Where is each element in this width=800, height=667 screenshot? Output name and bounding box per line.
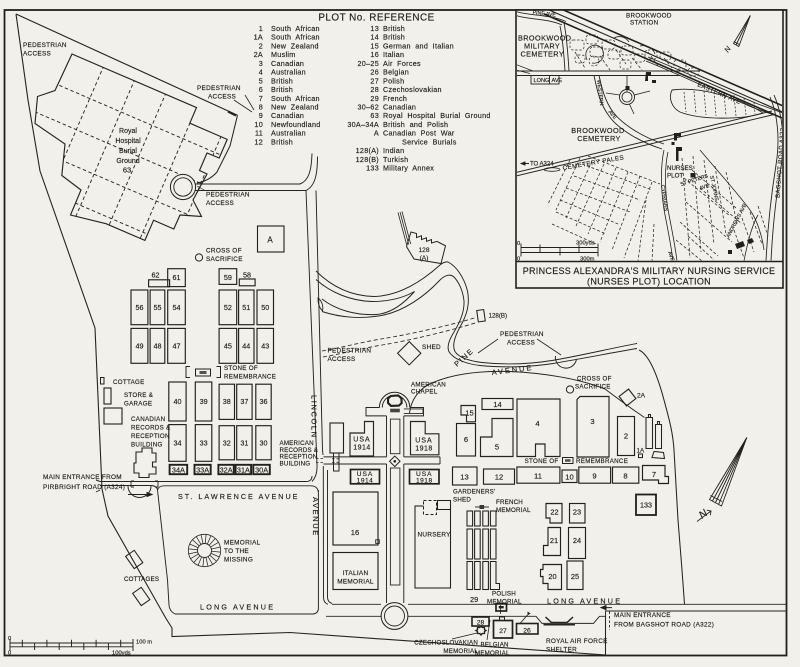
svg-text:61: 61: [173, 273, 181, 282]
svg-text:AVE: AVE: [552, 78, 563, 84]
svg-text:10: 10: [254, 120, 263, 129]
svg-text:32: 32: [223, 439, 231, 448]
svg-text:56: 56: [136, 303, 144, 312]
svg-text:NURSERY: NURSERY: [418, 532, 452, 539]
svg-text:9: 9: [259, 111, 263, 120]
svg-text:1914: 1914: [357, 478, 374, 485]
svg-text:48: 48: [154, 342, 162, 351]
svg-text:7: 7: [652, 470, 656, 479]
svg-text:CEMETERY: CEMETERY: [521, 50, 565, 59]
svg-text:6: 6: [259, 85, 263, 94]
svg-text:LONG AVENUE: LONG AVENUE: [200, 603, 275, 612]
svg-text:ITALIAN: ITALIAN: [343, 570, 369, 577]
svg-text:COTTAGES: COTTAGES: [124, 576, 159, 583]
svg-text:30A: 30A: [255, 466, 268, 475]
svg-text:Air Forces: Air Forces: [383, 59, 421, 68]
svg-text:STORE &: STORE &: [124, 392, 154, 399]
svg-text:British and Polish: British and Polish: [383, 120, 448, 129]
svg-text:MEMORIAL: MEMORIAL: [443, 648, 478, 655]
svg-text:GARDENERS': GARDENERS': [453, 489, 495, 496]
svg-text:(NURSES PLOT) LOCATION: (NURSES PLOT) LOCATION: [587, 277, 711, 287]
svg-text:1A: 1A: [637, 448, 645, 455]
svg-text:British: British: [271, 137, 293, 146]
svg-text:AVENUE: AVENUE: [311, 497, 320, 537]
svg-text:5: 5: [495, 443, 499, 452]
svg-text:30–62: 30–62: [358, 103, 380, 112]
svg-text:16: 16: [370, 50, 379, 59]
svg-text:1918: 1918: [416, 478, 433, 485]
svg-text:38: 38: [223, 397, 231, 406]
svg-text:1A: 1A: [254, 33, 263, 42]
svg-text:Military Annex: Military Annex: [383, 164, 434, 173]
svg-text:128: 128: [418, 247, 429, 254]
svg-text:New Zealand: New Zealand: [271, 103, 319, 112]
svg-text:133: 133: [640, 501, 652, 510]
svg-text:29: 29: [370, 94, 379, 103]
svg-text:CHAPEL: CHAPEL: [411, 389, 438, 396]
svg-text:Service Burials: Service Burials: [402, 137, 457, 146]
svg-text:24: 24: [573, 536, 581, 545]
svg-text:SHED: SHED: [453, 497, 471, 504]
svg-text:SACRIFICE: SACRIFICE: [575, 384, 611, 391]
svg-text:CROSS OF: CROSS OF: [577, 376, 612, 383]
svg-text:32A: 32A: [220, 466, 233, 475]
svg-text:300yds: 300yds: [576, 241, 595, 247]
svg-text:Belgian: Belgian: [383, 68, 409, 77]
svg-text:Ground: Ground: [116, 158, 139, 165]
svg-text:2A: 2A: [254, 50, 263, 59]
svg-text:TO A324: TO A324: [530, 162, 554, 168]
svg-text:PLOT: PLOT: [667, 173, 683, 180]
svg-text:ROYAL AIR FORCE: ROYAL AIR FORCE: [546, 638, 608, 645]
svg-text:STONE OF: STONE OF: [525, 458, 559, 465]
svg-text:Canadian: Canadian: [383, 103, 416, 112]
svg-text:21: 21: [550, 536, 558, 545]
svg-text:CROSS OF: CROSS OF: [206, 248, 242, 255]
svg-text:ST. LAWRENCE AVENUE: ST. LAWRENCE AVENUE: [178, 492, 299, 501]
svg-text:34: 34: [174, 439, 182, 448]
svg-text:15: 15: [465, 409, 473, 418]
svg-text:8: 8: [623, 472, 627, 481]
svg-text:British: British: [383, 24, 405, 33]
svg-text:12: 12: [254, 137, 263, 146]
svg-text:PEDESTRIAN: PEDESTRIAN: [197, 85, 241, 92]
svg-text:Italian: Italian: [383, 50, 404, 59]
svg-text:ACCESS: ACCESS: [23, 51, 51, 58]
svg-text:1918: 1918: [415, 446, 433, 453]
svg-text:MISSING: MISSING: [224, 557, 253, 564]
svg-text:COTTAGE: COTTAGE: [113, 379, 145, 386]
svg-text:REMEMBRANCE: REMEMBRANCE: [576, 458, 628, 465]
svg-text:47: 47: [173, 342, 181, 351]
svg-text:MEMORIAL: MEMORIAL: [496, 507, 531, 514]
svg-text:2: 2: [259, 41, 263, 50]
svg-text:13: 13: [460, 473, 468, 482]
svg-text:63: 63: [370, 111, 379, 120]
svg-text:43: 43: [261, 342, 269, 351]
svg-text:Royal Hospital Burial Ground: Royal Hospital Burial Ground: [383, 111, 491, 120]
svg-text:30: 30: [260, 439, 268, 448]
svg-text:0: 0: [8, 636, 11, 642]
svg-text:PIRBRIGHT ROAD (A324): PIRBRIGHT ROAD (A324): [43, 484, 125, 491]
svg-text:A: A: [267, 236, 273, 245]
svg-text:28: 28: [370, 85, 379, 94]
svg-text:49: 49: [136, 342, 144, 351]
svg-text:RECORDS &: RECORDS &: [131, 425, 171, 432]
svg-text:BROOKWOOD: BROOKWOOD: [626, 13, 672, 20]
svg-text:Australian: Australian: [271, 129, 306, 138]
svg-text:PEDESTRIAN: PEDESTRIAN: [23, 42, 67, 49]
svg-text:15: 15: [370, 41, 379, 50]
svg-text:South African: South African: [271, 33, 320, 42]
svg-text:LONG AVENUE: LONG AVENUE: [547, 597, 622, 606]
svg-text:PRINCESS ALEXANDRA'S MILITARY: PRINCESS ALEXANDRA'S MILITARY NURSING SE…: [523, 266, 776, 276]
svg-text:20–25: 20–25: [358, 59, 380, 68]
svg-text:50: 50: [261, 303, 269, 312]
svg-text:ACCESS: ACCESS: [328, 356, 356, 363]
svg-text:REMEMBRANCE: REMEMBRANCE: [224, 374, 276, 381]
svg-text:CZECHOSLOVAKIAN: CZECHOSLOVAKIAN: [414, 640, 478, 647]
svg-text:11: 11: [534, 472, 542, 481]
svg-text:33A: 33A: [196, 466, 209, 475]
svg-text:23: 23: [573, 508, 581, 517]
svg-text:SHED: SHED: [422, 344, 441, 351]
svg-text:39: 39: [200, 397, 208, 406]
svg-text:36: 36: [260, 397, 268, 406]
svg-text:Newfoundland: Newfoundland: [271, 120, 321, 129]
svg-text:South African: South African: [271, 94, 320, 103]
svg-text:14: 14: [370, 33, 379, 42]
svg-text:100yds: 100yds: [112, 651, 131, 657]
svg-text:3: 3: [259, 59, 263, 68]
svg-text:45: 45: [224, 342, 232, 351]
svg-text:PEDESTRIAN: PEDESTRIAN: [328, 348, 372, 355]
svg-text:31A: 31A: [237, 466, 250, 475]
svg-text:Hospital: Hospital: [115, 138, 141, 145]
svg-text:MAIN ENTRANCE: MAIN ENTRANCE: [614, 612, 671, 619]
svg-text:RECEPTION: RECEPTION: [280, 454, 318, 461]
svg-text:6: 6: [464, 435, 468, 444]
svg-text:(A): (A): [420, 255, 429, 262]
svg-text:MEMORIAL: MEMORIAL: [337, 579, 374, 586]
svg-text:BELGIAN: BELGIAN: [481, 642, 509, 649]
svg-text:25: 25: [571, 572, 579, 581]
svg-text:AMERICAN: AMERICAN: [411, 382, 446, 389]
svg-text:26: 26: [370, 68, 379, 77]
svg-text:British: British: [271, 85, 293, 94]
svg-text:0: 0: [8, 651, 11, 657]
svg-text:2: 2: [624, 432, 628, 441]
svg-text:NURSES: NURSES: [667, 165, 693, 172]
svg-text:ACCESS: ACCESS: [507, 340, 535, 347]
svg-text:POLISH: POLISH: [492, 591, 516, 598]
svg-text:Polish: Polish: [383, 76, 404, 85]
svg-text:55: 55: [154, 303, 162, 312]
svg-text:12: 12: [495, 473, 503, 482]
svg-text:Canadian: Canadian: [271, 59, 304, 68]
svg-text:5: 5: [259, 76, 263, 85]
svg-text:PEDESTRIAN: PEDESTRIAN: [500, 331, 544, 338]
svg-text:54: 54: [173, 303, 181, 312]
svg-text:13: 13: [370, 24, 379, 33]
svg-text:26: 26: [523, 628, 531, 635]
svg-text:2A: 2A: [637, 393, 646, 400]
svg-text:20: 20: [548, 572, 556, 581]
svg-text:Turkish: Turkish: [383, 155, 408, 164]
svg-text:LINCOLN: LINCOLN: [310, 395, 319, 439]
svg-text:29: 29: [470, 595, 478, 604]
svg-text:Royal: Royal: [119, 128, 137, 135]
svg-text:Burial: Burial: [119, 148, 137, 155]
svg-text:FRENCH: FRENCH: [496, 499, 523, 506]
svg-text:ACCESS: ACCESS: [206, 200, 234, 207]
svg-text:44: 44: [242, 342, 250, 351]
svg-text:PLOT No. REFERENCE: PLOT No. REFERENCE: [318, 13, 434, 24]
svg-text:New Zealand: New Zealand: [271, 41, 319, 50]
svg-text:52: 52: [224, 303, 232, 312]
svg-text:RECEPTION: RECEPTION: [131, 433, 170, 440]
svg-text:3: 3: [590, 417, 594, 426]
svg-text:Australian: Australian: [271, 68, 306, 77]
svg-text:27: 27: [499, 628, 507, 635]
svg-text:128(B): 128(B): [489, 313, 508, 320]
svg-text:37: 37: [240, 397, 248, 406]
svg-text:0: 0: [517, 241, 520, 247]
svg-text:9: 9: [592, 472, 596, 481]
svg-text:PEDESTRIAN: PEDESTRIAN: [206, 192, 250, 199]
svg-text:30A–34A: 30A–34A: [347, 120, 379, 129]
svg-text:Canadian Post War: Canadian Post War: [383, 129, 455, 138]
svg-text:STONE OF: STONE OF: [224, 365, 258, 372]
svg-text:MEMORIAL: MEMORIAL: [224, 540, 261, 547]
svg-text:14: 14: [493, 400, 501, 409]
svg-text:FROM BAGSHOT ROAD (A322): FROM BAGSHOT ROAD (A322): [614, 622, 714, 629]
svg-text:British: British: [383, 33, 405, 42]
svg-text:27: 27: [370, 76, 379, 85]
svg-text:133: 133: [366, 164, 379, 173]
svg-text:128(A): 128(A): [356, 146, 379, 155]
svg-text:CANADIAN: CANADIAN: [131, 416, 165, 423]
svg-text:59: 59: [224, 273, 232, 282]
svg-text:USA: USA: [415, 438, 432, 445]
svg-text:16: 16: [351, 528, 359, 537]
svg-text:10: 10: [565, 473, 573, 482]
svg-text:MAIN ENTRANCE FROM: MAIN ENTRANCE FROM: [43, 474, 122, 481]
svg-text:Canadian: Canadian: [271, 111, 304, 120]
svg-text:4: 4: [259, 68, 263, 77]
svg-text:ACCESS: ACCESS: [208, 94, 236, 101]
svg-text:South African: South African: [271, 24, 320, 33]
svg-text:SHELTER: SHELTER: [546, 647, 577, 654]
svg-text:BUILDING: BUILDING: [280, 461, 311, 468]
svg-text:German and Italian: German and Italian: [383, 41, 454, 50]
svg-text:USA: USA: [353, 437, 370, 444]
svg-text:128(B): 128(B): [356, 155, 379, 164]
svg-text:62: 62: [152, 271, 160, 280]
svg-text:Indian: Indian: [383, 146, 404, 155]
svg-text:A: A: [374, 129, 379, 138]
svg-text:1914: 1914: [353, 445, 371, 452]
svg-text:TO THE: TO THE: [224, 548, 249, 555]
svg-text:100 m: 100 m: [136, 640, 152, 646]
svg-text:GARAGE: GARAGE: [124, 401, 152, 408]
svg-text:SACRIFICE: SACRIFICE: [206, 256, 243, 263]
svg-text:Muslim: Muslim: [271, 50, 296, 59]
svg-text:1: 1: [259, 24, 263, 33]
svg-text:8: 8: [259, 103, 263, 112]
svg-text:British: British: [271, 76, 293, 85]
svg-text:34A: 34A: [172, 466, 185, 475]
svg-text:33: 33: [200, 439, 208, 448]
svg-text:11: 11: [255, 129, 263, 138]
svg-text:63: 63: [123, 166, 131, 175]
svg-text:STATION: STATION: [630, 20, 659, 27]
svg-text:LONG: LONG: [534, 78, 550, 84]
svg-text:58: 58: [243, 270, 251, 279]
svg-text:31: 31: [240, 439, 248, 448]
svg-text:51: 51: [242, 303, 250, 312]
svg-text:MEMORIAL: MEMORIAL: [475, 650, 510, 657]
svg-text:40: 40: [174, 397, 182, 406]
svg-text:CEMETERY: CEMETERY: [577, 134, 621, 143]
svg-text:French: French: [383, 94, 407, 103]
svg-text:22: 22: [550, 508, 558, 517]
svg-text:4: 4: [535, 419, 539, 428]
svg-text:Czechoslovakian: Czechoslovakian: [383, 85, 442, 94]
svg-text:7: 7: [259, 94, 263, 103]
